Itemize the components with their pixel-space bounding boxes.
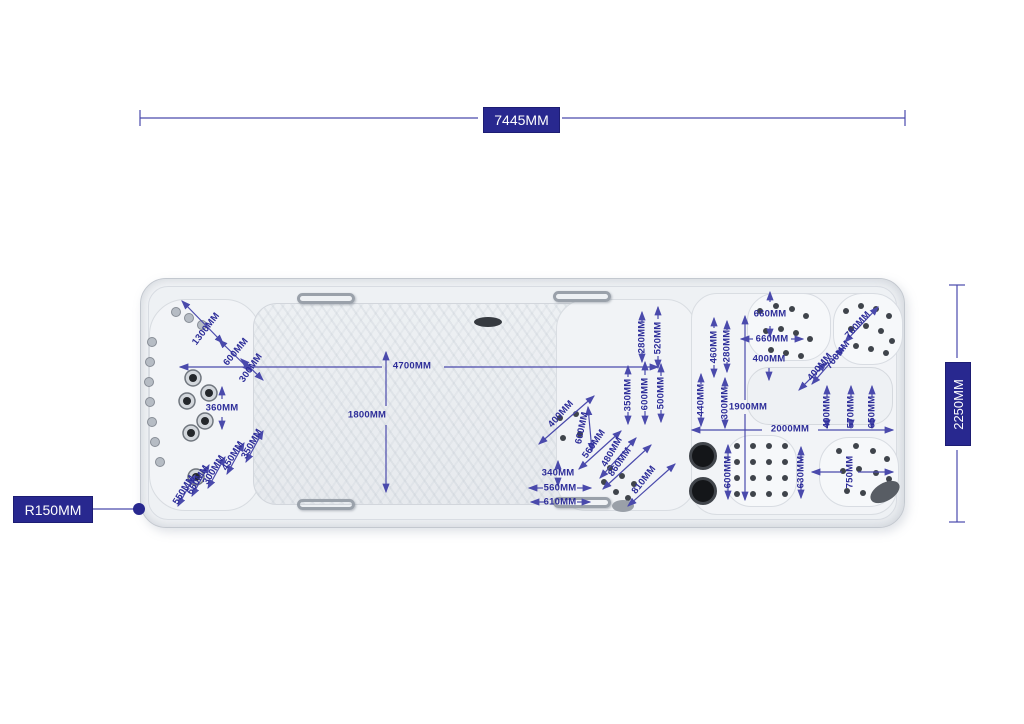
overall-width-value: 2250MM	[951, 379, 966, 430]
speaker-knob	[691, 444, 716, 469]
small-jet	[625, 495, 631, 501]
drain-fixture	[474, 317, 502, 327]
dimension-line	[246, 431, 263, 462]
chrome-jet-center	[201, 417, 209, 425]
rim-jet	[146, 398, 155, 407]
small-jet	[750, 443, 756, 449]
small-jet	[782, 459, 788, 465]
overall-length-label: 7445MM	[483, 107, 560, 133]
rim-jet	[185, 314, 194, 323]
small-jet	[613, 489, 619, 495]
small-jet	[778, 326, 784, 332]
small-jet	[577, 431, 583, 437]
small-jet	[840, 468, 846, 474]
small-jet	[766, 491, 772, 497]
corner-radius-label: R150MM	[13, 496, 93, 523]
small-jet	[766, 459, 772, 465]
small-jet	[860, 490, 866, 496]
small-jet	[734, 443, 740, 449]
small-jet	[848, 326, 854, 332]
small-jet	[886, 313, 892, 319]
small-jet	[757, 308, 763, 314]
small-jet	[766, 443, 772, 449]
dimension-line	[600, 438, 636, 478]
small-jet	[750, 475, 756, 481]
small-jet	[873, 470, 879, 476]
small-jet	[789, 306, 795, 312]
chrome-jet-center	[192, 473, 200, 481]
rim-jet	[151, 438, 160, 447]
leader-dot	[133, 503, 145, 515]
chrome-jet-center	[189, 374, 197, 382]
rim-jet	[148, 338, 157, 347]
small-jet	[631, 481, 637, 487]
speaker-knob	[691, 479, 716, 504]
small-jet	[853, 343, 859, 349]
rim-jet	[172, 308, 181, 317]
small-jet	[557, 415, 563, 421]
dimension-line	[219, 340, 251, 371]
drain-fixture	[867, 476, 904, 508]
dimension-line	[579, 431, 621, 469]
small-jet	[803, 313, 809, 319]
small-jet	[883, 350, 889, 356]
dimension-line	[539, 396, 594, 444]
dimension-line	[227, 443, 244, 474]
small-jet	[601, 479, 607, 485]
small-jet	[858, 303, 864, 309]
small-jet	[763, 328, 769, 334]
small-jet	[853, 443, 859, 449]
small-jet	[766, 475, 772, 481]
overall-length-value: 7445MM	[494, 112, 548, 128]
small-jet	[750, 459, 756, 465]
small-jet	[734, 475, 740, 481]
small-jet	[843, 308, 849, 314]
small-jet	[782, 491, 788, 497]
small-jet	[844, 488, 850, 494]
chrome-jet-center	[205, 389, 213, 397]
small-jet	[878, 328, 884, 334]
small-jet	[768, 347, 774, 353]
small-jet	[560, 435, 566, 441]
small-jet	[870, 448, 876, 454]
rim-jet	[146, 358, 155, 367]
small-jet	[884, 456, 890, 462]
dimension-diagram: 1300MM600MM300MM4700MM1800MM360MM350MM45…	[0, 0, 1024, 724]
dimension-line	[241, 359, 263, 380]
chrome-jet-center	[187, 429, 195, 437]
small-jet	[750, 491, 756, 497]
small-jet	[856, 466, 862, 472]
dimension-line	[845, 307, 878, 342]
chrome-jet-center	[183, 397, 191, 405]
rim-jet	[156, 458, 165, 467]
overall-width-label: 2250MM	[945, 362, 971, 446]
dimension-line	[799, 363, 826, 390]
small-jet	[798, 353, 804, 359]
small-jet	[807, 336, 813, 342]
dimension-line	[178, 475, 195, 506]
small-jet	[734, 491, 740, 497]
small-jet	[783, 350, 789, 356]
small-jet	[889, 338, 895, 344]
small-jet	[836, 448, 842, 454]
small-jet	[734, 459, 740, 465]
small-jet	[782, 475, 788, 481]
dimension-line	[812, 347, 844, 384]
small-jet	[793, 330, 799, 336]
small-jet	[868, 346, 874, 352]
dimension-line	[588, 407, 592, 451]
rim-jet	[145, 378, 154, 387]
small-jet	[782, 443, 788, 449]
small-jet	[863, 323, 869, 329]
drain-fixture	[612, 500, 634, 512]
rim-jet	[148, 418, 157, 427]
dimension-line	[208, 457, 225, 488]
small-jet	[773, 303, 779, 309]
corner-radius-value: R150MM	[25, 502, 82, 518]
